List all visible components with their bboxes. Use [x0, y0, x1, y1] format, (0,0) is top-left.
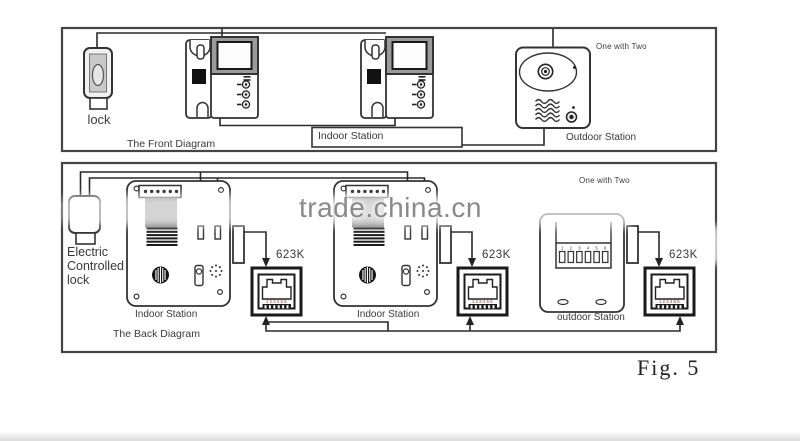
watermark-text: trade.china.cn — [299, 192, 482, 224]
lock-label: lock — [84, 112, 114, 127]
figure-caption: Fig. 5 — [637, 355, 700, 381]
indoor-station-back-label-2: Indoor Station — [357, 309, 419, 320]
indoor-station-front-1 — [186, 37, 258, 118]
connector-label-1: 623K — [276, 249, 305, 261]
one-with-two-label-back: One with Two — [579, 176, 630, 185]
jack-623k-3 — [645, 268, 694, 315]
jack-623k-1 — [252, 268, 301, 315]
outdoor-station-front-label: Outdoor Station — [566, 132, 636, 143]
instruction-diagram: 123456 — [0, 0, 800, 441]
outdoor-station-back-label: outdoor Station — [557, 312, 625, 323]
indoor-station-front-2 — [361, 37, 433, 118]
connector-label-3: 623K — [669, 249, 698, 261]
outdoor-station-back: 1 2 3 4 5 6 — [540, 214, 624, 312]
outdoor-station-front — [516, 48, 590, 129]
indoor-station-front-label: Indoor Station — [318, 130, 383, 142]
jack-623k-2 — [458, 268, 507, 315]
front-diagram-caption: The Front Diagram — [127, 138, 215, 150]
one-with-two-label-front: One with Two — [596, 42, 647, 51]
electric-lock-label: Electric Controlled lock — [67, 245, 137, 287]
back-diagram-caption: The Back Diagram — [113, 328, 200, 340]
watermark-blur-band-2 — [533, 206, 633, 228]
connector-label-2: 623K — [482, 249, 511, 261]
watermark-blur-spot — [699, 223, 719, 267]
indoor-station-back-label-1: Indoor Station — [135, 309, 197, 320]
lock-front — [84, 48, 112, 109]
